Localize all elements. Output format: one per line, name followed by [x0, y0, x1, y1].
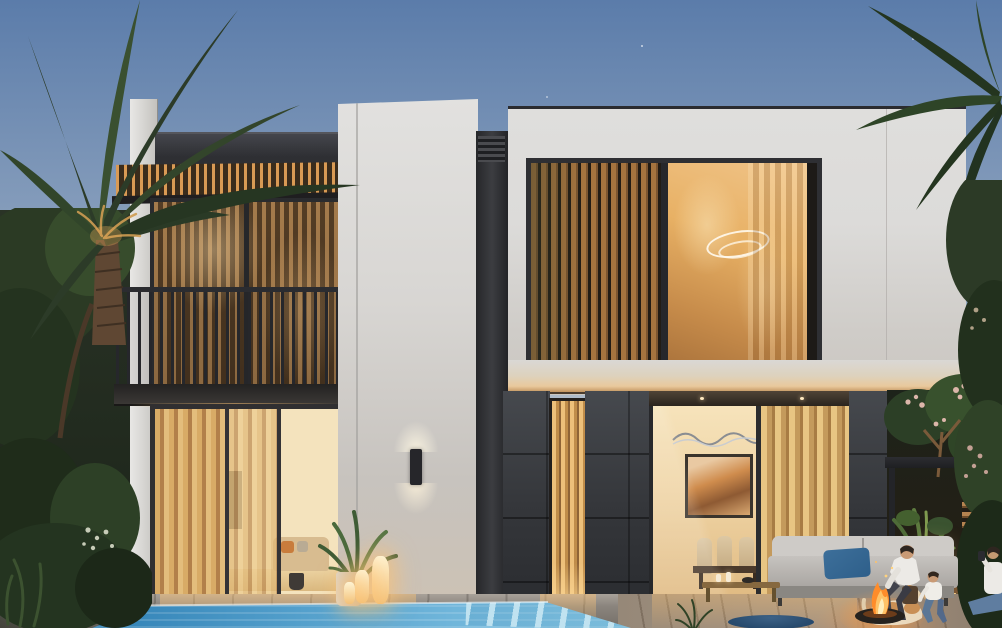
- palm-tree-left: [0, 0, 380, 360]
- blue-pouf: [728, 615, 814, 628]
- table-bowl: [742, 577, 754, 583]
- coffee-table: [702, 582, 780, 588]
- wood-louver-screen: [531, 163, 661, 369]
- table-leg: [772, 588, 776, 602]
- warm-lit-glass: [668, 163, 807, 369]
- sofa-leg: [778, 598, 782, 606]
- candle: [716, 574, 721, 582]
- curtain-panel: [155, 409, 225, 601]
- sconce-uplight: [384, 408, 448, 452]
- gray-pillow: [297, 541, 308, 552]
- candle-lantern: [372, 556, 389, 604]
- deck-plant-sprigs: [672, 598, 716, 628]
- family-fire-scene: [840, 530, 1002, 628]
- sheer-curtain-panel: [229, 409, 279, 601]
- candle-lantern: [355, 570, 369, 603]
- stone-clad-wall: [503, 391, 550, 598]
- stone-clad-wall: [585, 391, 649, 598]
- candle-lantern: [344, 582, 355, 604]
- upper-bedroom-window: [526, 158, 822, 374]
- star: [546, 96, 548, 98]
- recessed-light: [800, 397, 804, 400]
- recessed-light: [700, 397, 704, 400]
- window-mullion: [661, 163, 668, 369]
- orange-pillow: [281, 541, 294, 553]
- sheer-curtain: [748, 163, 807, 369]
- wall-sconce: [410, 449, 422, 485]
- candle: [726, 572, 731, 582]
- star: [641, 45, 643, 47]
- person-right-edge: [968, 547, 1002, 616]
- side-stool: [289, 573, 304, 590]
- vent-louvers: [478, 136, 505, 162]
- glass-wall-soffit: [649, 391, 849, 406]
- villa-dusk-render: [0, 0, 1002, 628]
- window-mullion: [225, 409, 229, 601]
- window-mullion: [277, 409, 281, 601]
